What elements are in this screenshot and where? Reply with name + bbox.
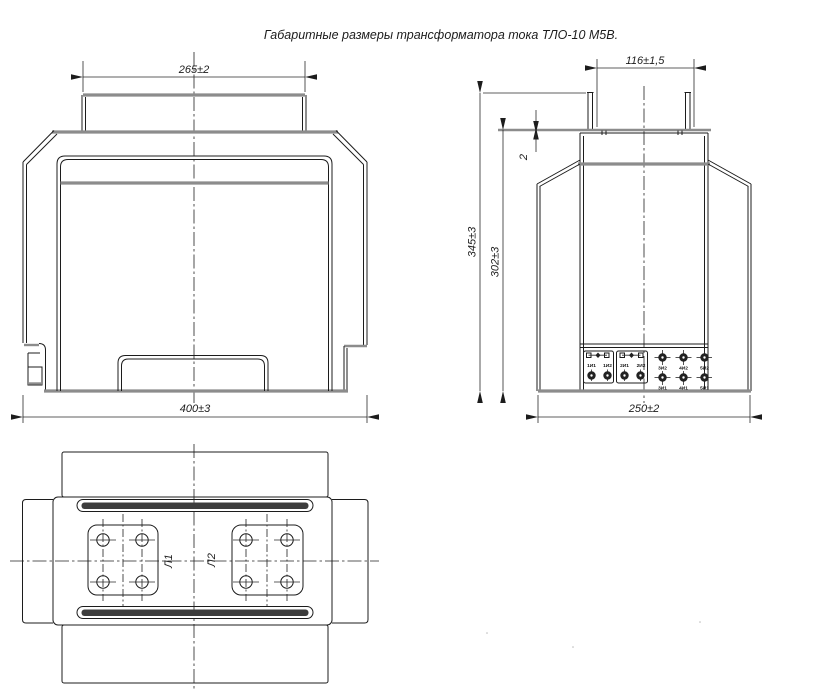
side-view: 116±1,5 xyxy=(467,55,752,423)
drawing-title: Габаритные размеры трансформатора тока Т… xyxy=(264,28,618,42)
scan-specks xyxy=(486,621,701,648)
terminal-label-5i2: 5И2 xyxy=(700,366,709,372)
terminal-right-group: 3И2 4И2 5И2 3И1 4И1 5И1 xyxy=(655,350,713,392)
primary-terminal-l2-label: Л2 xyxy=(206,553,218,568)
side-dim-bottom-label: 250±2 xyxy=(628,403,660,415)
inner-face-inner xyxy=(61,160,329,392)
front-view: 265±2 xyxy=(23,52,367,423)
side-dim-h302-label: 302±3 xyxy=(490,246,502,277)
link-diamond-2 xyxy=(629,353,634,359)
plan-view: Л1 Л2 xyxy=(10,444,379,691)
terminal-label-3i2: 3И2 xyxy=(658,366,667,372)
drawing-canvas: Габаритные размеры трансформатора тока Т… xyxy=(0,0,817,694)
terminal-label-4i2: 4И2 xyxy=(679,366,688,372)
terminal-label-2i2: 2И2 xyxy=(637,363,646,369)
front-dim-bottom-label: 400±3 xyxy=(180,403,211,415)
terminal-label-1i2: 1И2 xyxy=(603,363,612,369)
side-dim-plate-label: 2 xyxy=(518,154,530,161)
link-diamond-1 xyxy=(596,353,601,359)
side-dim-h345-label: 345±3 xyxy=(467,226,479,257)
terminal-block: 1И1 1И2 2И1 2И2 xyxy=(584,350,713,392)
terminal-label-1i1: 1И1 xyxy=(587,363,596,369)
plan-top-block xyxy=(62,452,328,497)
ground-bracket xyxy=(24,344,46,392)
terminal-label-2i1: 2И1 xyxy=(620,363,629,369)
technical-drawing-svg: Габаритные размеры трансформатора тока Т… xyxy=(0,0,817,694)
plinth-outer xyxy=(118,356,268,392)
side-dim-top-label: 116±1,5 xyxy=(626,55,666,67)
plinth-inner xyxy=(122,359,265,391)
front-dim-top-label: 265±2 xyxy=(178,64,210,76)
primary-terminal-l1-label: Л1 xyxy=(163,554,175,569)
plan-bottom-block xyxy=(62,625,328,683)
